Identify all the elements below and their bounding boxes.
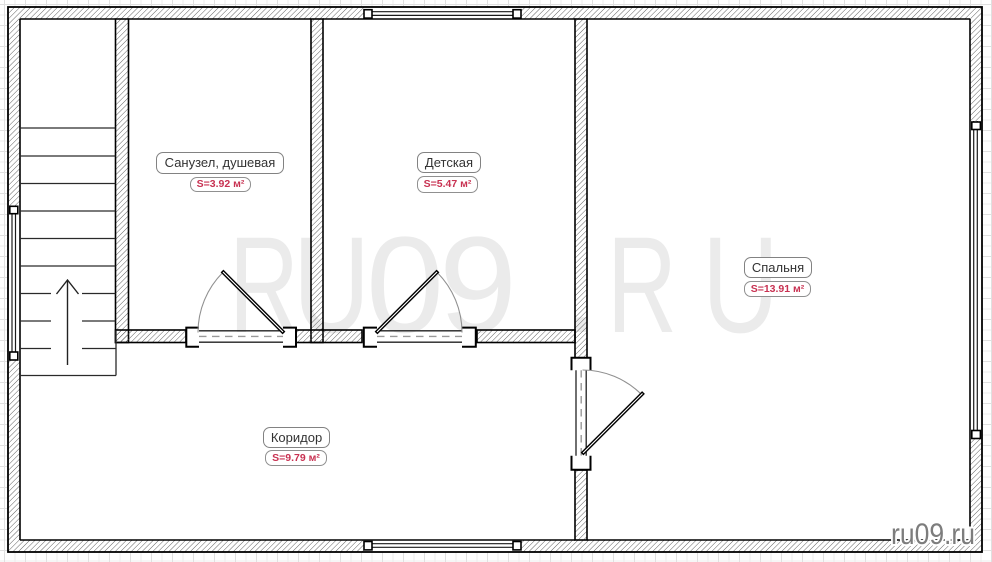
svg-text:R: R bbox=[607, 209, 677, 362]
svg-text:0: 0 bbox=[366, 209, 444, 362]
svg-text:ru09.ru: ru09.ru bbox=[891, 518, 975, 551]
